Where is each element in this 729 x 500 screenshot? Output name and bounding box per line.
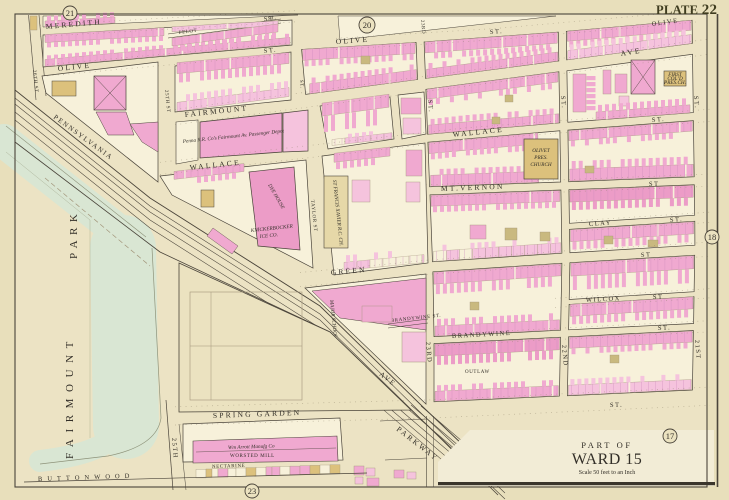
svg-text:ST.: ST.	[610, 402, 623, 409]
svg-text:PRES.CH.: PRES.CH.	[663, 80, 686, 86]
svg-text:17: 17	[666, 431, 675, 441]
svg-text:21: 21	[66, 8, 75, 18]
svg-text:ST.: ST.	[263, 47, 277, 55]
svg-text:Scale 50 feet to an Inch: Scale 50 feet to an Inch	[579, 469, 635, 476]
svg-text:18: 18	[708, 232, 717, 242]
svg-text:PART OF: PART OF	[581, 440, 632, 450]
svg-text:ST.: ST.	[559, 96, 567, 110]
svg-text:PARK: PARK	[68, 209, 80, 259]
svg-text:ST.: ST.	[426, 100, 434, 114]
svg-text:WORSTED MILL: WORSTED MILL	[230, 454, 275, 459]
svg-text:ST.: ST.	[490, 28, 504, 36]
svg-text:20: 20	[363, 20, 372, 30]
svg-text:ST: ST	[653, 293, 664, 301]
svg-text:ST.: ST.	[658, 324, 672, 332]
svg-text:CHURCH: CHURCH	[530, 162, 552, 168]
svg-text:ST: ST	[641, 251, 652, 259]
svg-text:ST: ST	[649, 181, 660, 188]
svg-text:ST.: ST.	[298, 80, 304, 89]
svg-text:ST.: ST.	[264, 15, 278, 23]
svg-text:ST.: ST.	[652, 116, 666, 124]
svg-text:ST.: ST.	[692, 96, 700, 110]
svg-text:FAIRMOUNT: FAIRMOUNT	[64, 335, 76, 459]
svg-text:OLIVET: OLIVET	[532, 148, 551, 154]
svg-text:PRES.: PRES.	[533, 155, 547, 161]
svg-text:WARD 15: WARD 15	[572, 451, 643, 468]
svg-text:OUTLAW: OUTLAW	[465, 370, 490, 375]
svg-text:PLATE 22: PLATE 22	[656, 2, 717, 18]
svg-text:ST.: ST.	[670, 216, 684, 224]
svg-text:23: 23	[248, 486, 257, 496]
